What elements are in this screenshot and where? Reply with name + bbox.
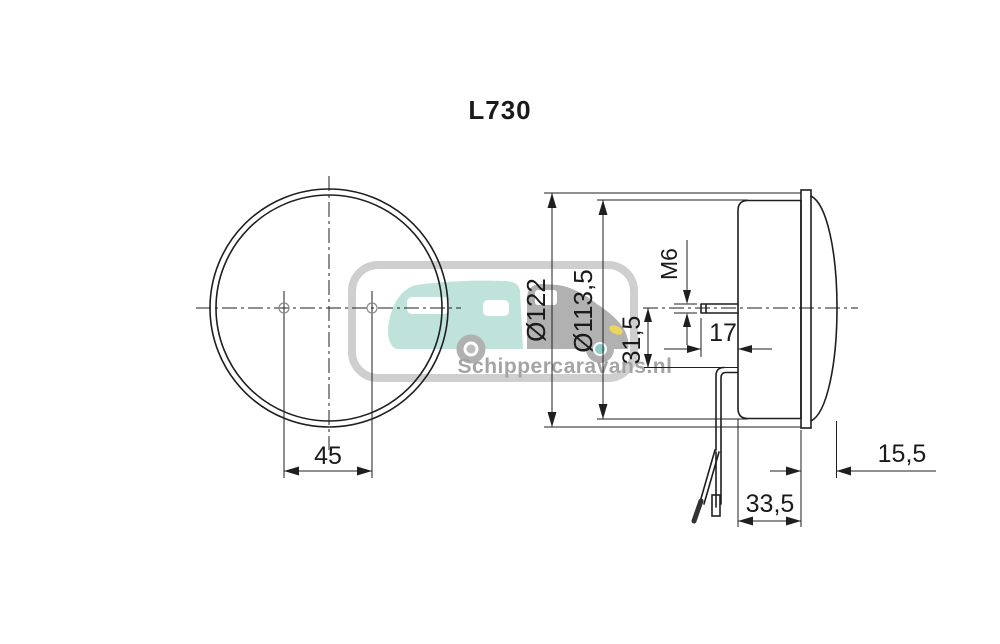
arrow-up-icon — [548, 193, 557, 208]
caravan-window-door — [483, 300, 509, 316]
dim-lens-depth: 15,5 — [770, 421, 936, 478]
dim-hole-spacing-label: 45 — [314, 442, 342, 470]
arrow-up-icon — [683, 313, 691, 327]
dim-thread-size-label: M6 — [656, 248, 682, 280]
arrow-left-icon — [738, 345, 752, 353]
arrow-down-icon — [599, 404, 608, 419]
dim-stud-length-label: 17 — [709, 319, 737, 347]
cable-assembly — [644, 368, 738, 522]
dim-lens-depth-label: 15,5 — [878, 440, 927, 468]
arrow-right-icon — [687, 345, 701, 353]
dim-body-diameter-label: Ø113,5 — [568, 269, 598, 352]
dim-cable-offset: 31,5 — [618, 308, 652, 368]
dim-thread-size: M6 — [656, 240, 691, 345]
lamp-housing-body — [738, 201, 801, 419]
cable-outer-edge — [716, 368, 724, 451]
drawing-svg: Schippercaravans.nl L730 45 Ø12 — [0, 0, 1000, 644]
arrow-right-icon — [786, 467, 801, 476]
dim-outer-diameter-label: Ø122 — [521, 278, 551, 342]
arrow-up-icon — [599, 200, 608, 215]
arrow-right-icon — [357, 467, 372, 476]
arrow-down-icon — [548, 412, 557, 427]
arrow-down-icon — [683, 290, 691, 304]
wire-splayed-ferrule — [694, 501, 701, 521]
dim-hole-spacing: 45 — [284, 442, 372, 476]
drawing-title: L730 — [468, 95, 531, 125]
mounting-flange — [801, 190, 811, 428]
arrow-left-icon — [837, 467, 852, 476]
technical-drawing-page: Schippercaravans.nl L730 45 Ø12 — [0, 0, 1000, 644]
caravan-wheel-hub — [467, 345, 476, 354]
arrow-left-icon — [284, 467, 299, 476]
dim-body-depth-label: 33,5 — [746, 490, 795, 518]
cable-inner-edge — [721, 373, 738, 453]
dim-cable-offset-label: 31,5 — [618, 316, 646, 365]
dim-stud-length: 17 — [664, 318, 772, 357]
